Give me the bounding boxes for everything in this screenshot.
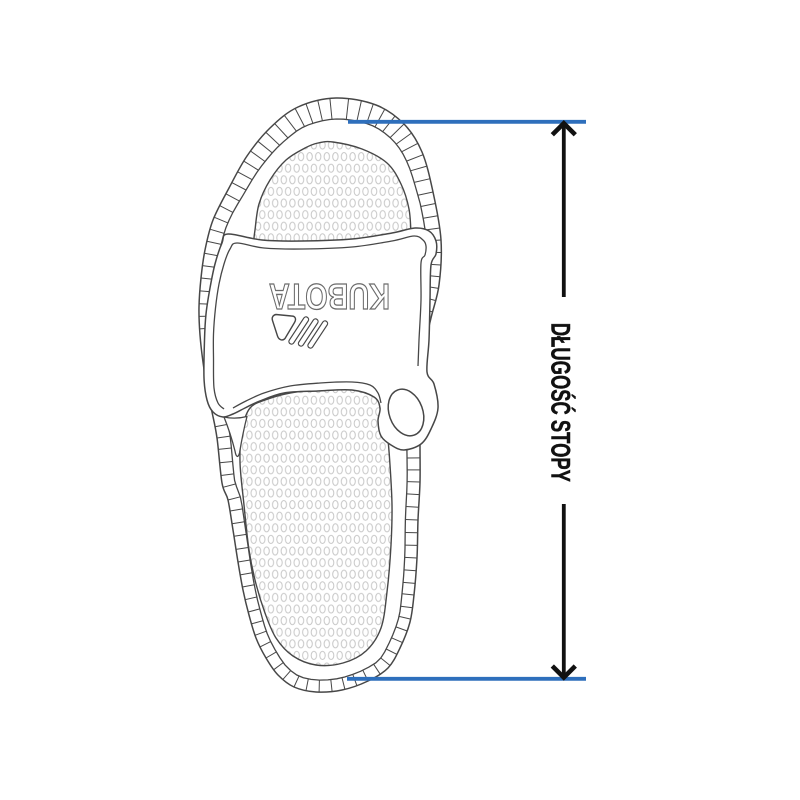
svg-text:KUBOTA: KUBOTA bbox=[269, 276, 390, 317]
svg-text:DŁUGOŚĆ STOPY: DŁUGOŚĆ STOPY bbox=[546, 323, 577, 482]
